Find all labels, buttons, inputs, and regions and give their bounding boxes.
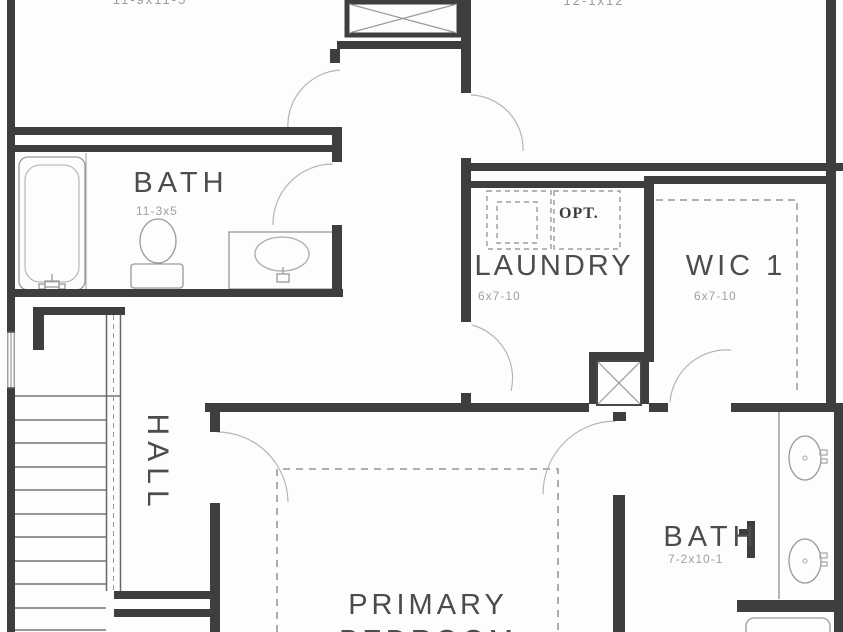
door-arc <box>471 95 523 151</box>
laundry-label: LAUNDRY <box>474 252 633 281</box>
bathtub-icon <box>19 157 85 290</box>
floor-plan: 11-9x11-5 12-1x12 BATH 11-3x5 OPT. LAUND… <box>0 0 843 632</box>
washer-dryer-icon <box>487 191 620 249</box>
primary-bath-fixtures <box>746 412 830 632</box>
hall-label: HALL <box>142 413 172 512</box>
door-arc <box>543 421 616 494</box>
bedroom-top-right-dim: 12-1x12 <box>564 0 625 7</box>
sink-icon <box>789 539 827 583</box>
stairs <box>15 315 121 630</box>
primary-bedroom-label-line2: BEDROOM <box>339 627 517 632</box>
wic1-dim: 6x7-10 <box>694 290 737 302</box>
window-icon <box>7 332 15 388</box>
door-arc <box>273 164 333 225</box>
bath-primary-dim: 7-2x10-1 <box>668 553 723 565</box>
primary-bedroom-label-line1: PRIMARY <box>348 591 508 620</box>
chase-x-boxes <box>347 2 641 405</box>
wic1-label: WIC 1 <box>686 252 787 281</box>
bedroom-top-left-dim: 11-9x11-5 <box>113 0 188 6</box>
bath-upper-label: BATH <box>133 169 228 198</box>
sink-icon <box>789 436 827 480</box>
laundry-opt-label: OPT. <box>559 206 599 222</box>
door-arc <box>472 325 513 391</box>
chase-x-icon <box>347 2 459 35</box>
laundry-dim: 6x7-10 <box>478 290 521 302</box>
vanity-sink-icon <box>229 232 333 289</box>
bath-upper-dim: 11-3x5 <box>136 205 178 217</box>
toilet-icon <box>131 219 183 288</box>
door-arc <box>288 70 340 130</box>
tub-icon <box>746 618 830 632</box>
door-arc <box>217 432 288 502</box>
bath-primary-label: BATH <box>663 523 758 552</box>
chase-x-icon <box>597 361 641 405</box>
door-arc <box>670 350 731 402</box>
